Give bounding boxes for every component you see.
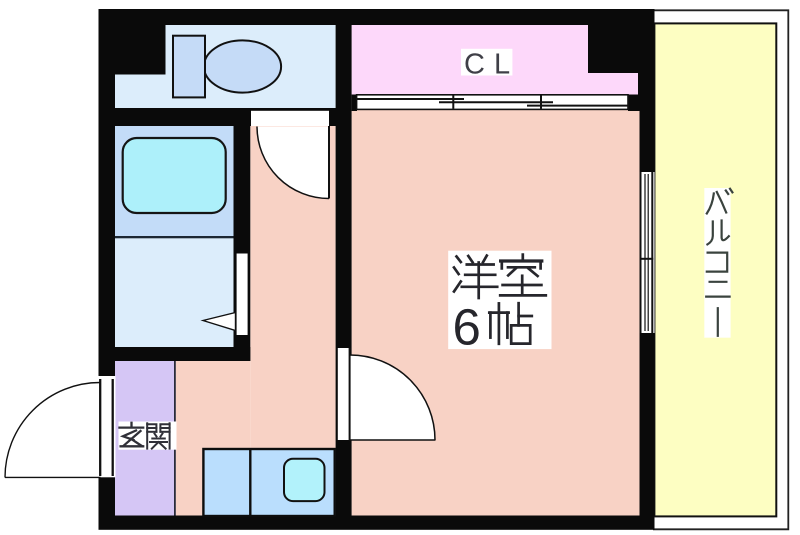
svg-text:6: 6 [453,299,481,356]
svg-text:CL: CL [464,49,519,81]
